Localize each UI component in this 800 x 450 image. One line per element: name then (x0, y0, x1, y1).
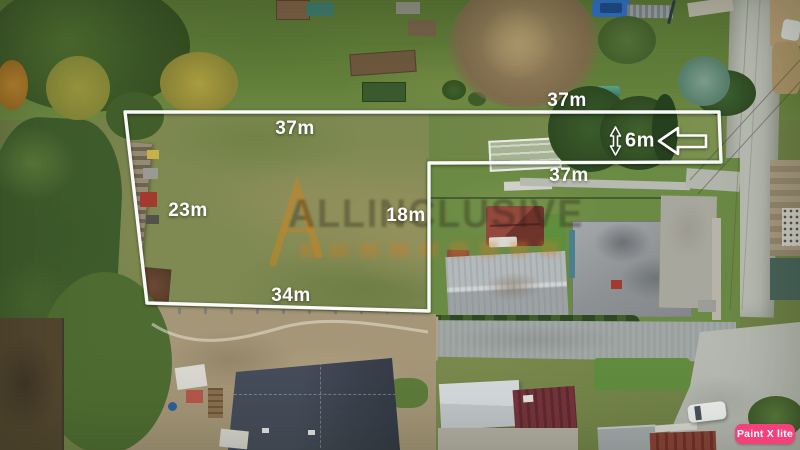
car-windshield (600, 3, 622, 13)
wall-edge-teal (569, 230, 575, 278)
gate-path (685, 168, 740, 192)
shed-item-red (140, 192, 157, 207)
label-plot-top: 37m (275, 118, 315, 140)
watermark-text: ALLINCLUSIVE (288, 192, 584, 237)
chimney (611, 280, 622, 289)
autumn-tree (160, 52, 238, 114)
label-strip-width: 6m (625, 130, 655, 153)
label-strip-bottom: 37m (549, 165, 589, 187)
cobble-courtyard (398, 316, 738, 364)
concrete-pad (659, 196, 717, 309)
garden-bed (408, 19, 437, 36)
shed-item-dark (146, 215, 159, 224)
plank-stack (208, 388, 223, 418)
fence-post-row (152, 308, 428, 314)
label-strip-top: 37m (547, 90, 587, 112)
aerial-photo: ALLINCLUSIVE 37m 37m 6m 37m 23m 18m 34m … (0, 0, 800, 450)
van-windshield (694, 406, 702, 421)
tarp-white (219, 429, 249, 450)
roof-seam-v (320, 362, 321, 448)
debris-red (186, 390, 203, 403)
concrete-yard (438, 428, 578, 450)
lawn-patch (594, 358, 690, 390)
dark-dirt-corner (0, 318, 64, 450)
roof-window (308, 430, 315, 435)
label-plot-bottom: 34m (271, 285, 311, 307)
bare-tree-texture (478, 8, 558, 78)
garden-bed (349, 50, 416, 77)
white-roof-building (439, 380, 521, 430)
blue-car (592, 0, 630, 17)
small-red-roof (650, 431, 717, 450)
garden-crates (362, 82, 406, 102)
gable-roof-building (445, 251, 568, 325)
cypress (652, 94, 678, 164)
yellow-green-tree (46, 56, 110, 120)
tarp-white (175, 364, 208, 390)
gate-pillars (698, 300, 716, 312)
blue-green-tree (678, 56, 730, 106)
gray-container (597, 425, 656, 450)
shed-item-yellow (147, 150, 159, 159)
paintx-badge: Paint X lite (735, 424, 795, 444)
parked-car (780, 19, 800, 42)
label-plot-left: 23m (168, 200, 208, 222)
roof-vent (523, 395, 533, 403)
garden-bed (276, 0, 310, 20)
shed-item-gray (143, 168, 158, 179)
sand-patch (772, 42, 800, 94)
label-inner-divider: 18m (386, 205, 426, 227)
compost-bin (396, 2, 420, 14)
garden-box-teal (306, 2, 334, 16)
shrub-cluster (598, 16, 656, 64)
container-teal (770, 258, 800, 300)
pallet-stack (782, 208, 800, 246)
maroon-roof-building (513, 386, 578, 434)
watermark-subline (300, 241, 565, 258)
roof-window (262, 428, 269, 433)
roof-seam-h (234, 394, 396, 395)
blue-bucket (168, 402, 177, 411)
tree-overhang (106, 92, 164, 140)
